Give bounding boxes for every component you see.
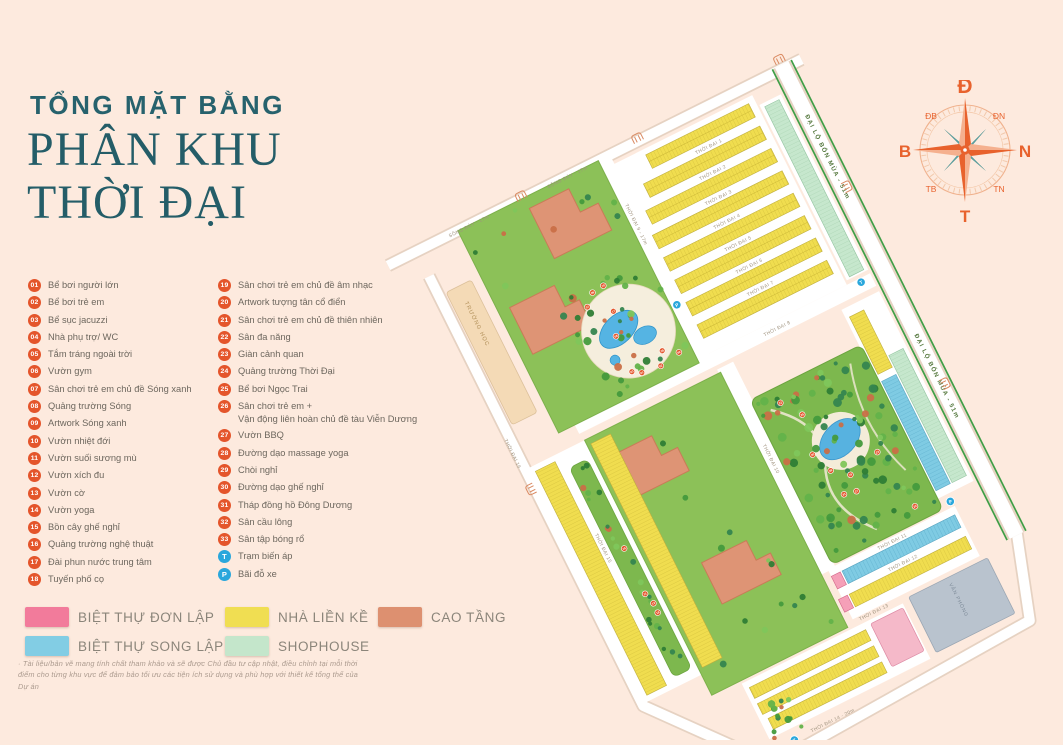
- legend-label: Tắm tráng ngoài trời: [48, 348, 132, 361]
- legend-label: Đài phun nước trung tâm: [48, 556, 152, 569]
- legend-number-badge: 27: [218, 429, 231, 442]
- svg-text:B: B: [899, 142, 911, 161]
- svg-text:TB: TB: [926, 184, 937, 194]
- legend-label: Đường dạo ghế nghỉ: [238, 481, 324, 494]
- legend-item: 09Artwork Sóng xanh: [28, 417, 228, 430]
- legend-number-badge: 12: [28, 469, 41, 482]
- legend-label: Chòi nghỉ: [238, 464, 277, 477]
- legend-item: 05Tắm tráng ngoài trời: [28, 348, 228, 361]
- svg-text:ĐN: ĐN: [993, 111, 1005, 121]
- compass-rose: Đ N T B ĐB ĐN TB TN: [895, 80, 1035, 240]
- legend-label: Sân chơi trẻ em chủ đề âm nhạc: [238, 279, 373, 292]
- legend-item: 08Quảng trường Sóng: [28, 400, 228, 413]
- svg-text:T: T: [960, 207, 971, 226]
- legend-number-badge: 23: [218, 348, 231, 361]
- legend-label: Artwork Sóng xanh: [48, 417, 127, 430]
- legend-number-badge: 17: [28, 556, 41, 569]
- legend-item: 01Bể bơi người lớn: [28, 279, 228, 292]
- legend-item: 07Sân chơi trẻ em chủ đề Sóng xanh: [28, 383, 228, 396]
- legend-number-badge: 32: [218, 516, 231, 529]
- legend-label: Đường dạo massage yoga: [238, 447, 349, 460]
- legend-label: Sân đa năng: [238, 331, 291, 344]
- legend-number-badge: 19: [218, 279, 231, 292]
- legend-number-badge: 05: [28, 348, 41, 361]
- legend-number-badge: 15: [28, 521, 41, 534]
- legend-label: Sân chơi trẻ em chủ đề Sóng xanh: [48, 383, 192, 396]
- subdivision-title: PHÂN KHU THỜI ĐẠI: [27, 124, 282, 230]
- legend-number-badge: 01: [28, 279, 41, 292]
- legend-item: 17Đài phun nước trung tâm: [28, 556, 228, 569]
- legend-number-badge: 31: [218, 499, 231, 512]
- legend-item: 14Vườn yoga: [28, 504, 228, 517]
- legend-label: Vườn xích đu: [48, 469, 104, 482]
- legend-label: Quảng trường nghệ thuật: [48, 538, 153, 551]
- svg-text:Đ: Đ: [957, 80, 972, 98]
- legend-item: 18Tuyến phố cọ: [28, 573, 228, 586]
- legend-label: Sân tập bóng rổ: [238, 533, 304, 546]
- type-legend-don-lap: BIỆT THỰ ĐƠN LẬP: [25, 607, 215, 627]
- legend-item: 06Vườn gym: [28, 365, 228, 378]
- legend-label: Bể bơi Ngọc Trai: [238, 383, 308, 396]
- legend-number-badge: 03: [28, 314, 41, 327]
- legend-label: Bồn cây ghế nghỉ: [48, 521, 120, 534]
- legend-number-badge: 09: [28, 417, 41, 430]
- legend-label: Trạm biến áp: [238, 550, 292, 563]
- color-swatch: [225, 607, 269, 627]
- legend-number-badge: 06: [28, 365, 41, 378]
- legend-number-badge: 33: [218, 533, 231, 546]
- legend-number-badge: 28: [218, 447, 231, 460]
- legend-number-badge: 25: [218, 383, 231, 396]
- subdivision-title-line1: PHÂN KHU: [27, 124, 282, 177]
- legend-number-badge: 29: [218, 464, 231, 477]
- legend-number-badge: 21: [218, 314, 231, 327]
- legend-label: Sân cầu lông: [238, 516, 292, 529]
- legend-number-badge: 14: [28, 504, 41, 517]
- master-plan-poster: TỔNG MẶT BẰNG PHÂN KHU THỜI ĐẠI 01Bể bơi…: [0, 0, 1063, 745]
- legend-item: 16Quảng trường nghệ thuật: [28, 538, 228, 551]
- legend-label: Quảng trường Sóng: [48, 400, 131, 413]
- svg-text:TN: TN: [993, 184, 1004, 194]
- legend-label: Sân chơi trẻ em chủ đề thiên nhiên: [238, 314, 383, 327]
- legend-number-badge: P: [218, 568, 231, 581]
- disclaimer-note: · Tài liệu/bản vẽ mang tính chất tham kh…: [18, 658, 370, 692]
- svg-text:ĐB: ĐB: [925, 111, 937, 121]
- legend-number-badge: 22: [218, 331, 231, 344]
- type-legend-shophouse: SHOPHOUSE: [225, 636, 370, 656]
- legend-label: Bể sục jacuzzi: [48, 314, 107, 327]
- legend-number-badge: 20: [218, 296, 231, 309]
- legend-label: Vườn suối sương mù: [48, 452, 137, 465]
- type-legend-lien-ke: NHÀ LIỀN KỀ: [225, 607, 369, 627]
- legend-number-badge: 04: [28, 331, 41, 344]
- type-legend-song-lap: BIỆT THỰ SONG LẬP: [25, 636, 224, 656]
- legend-label: Giàn cảnh quan: [238, 348, 304, 361]
- legend-number-badge: 16: [28, 538, 41, 551]
- amenity-legend-column-1: 01Bể bơi người lớn02Bể bơi trẻ em03Bể sụ…: [28, 279, 228, 590]
- legend-label: Tuyến phố cọ: [48, 573, 104, 586]
- legend-number-badge: 11: [28, 452, 41, 465]
- legend-label: Artwork tượng tân cổ điển: [238, 296, 345, 309]
- legend-item: 04Nhà phụ trợ/ WC: [28, 331, 228, 344]
- color-swatch: [25, 636, 69, 656]
- legend-number-badge: 26: [218, 400, 231, 413]
- legend-label: Vườn BBQ: [238, 429, 284, 442]
- subdivision-title-line2: THỜI ĐẠI: [27, 177, 282, 230]
- legend-label: Bể bơi trẻ em: [48, 296, 104, 309]
- svg-text:N: N: [1019, 142, 1031, 161]
- legend-label: Tháp đồng hồ Đông Dương: [238, 499, 352, 512]
- legend-item: 03Bể sục jacuzzi: [28, 314, 228, 327]
- legend-number-badge: 08: [28, 400, 41, 413]
- color-swatch: [25, 607, 69, 627]
- legend-item: 10Vườn nhiệt đới: [28, 435, 228, 448]
- legend-number-badge: 18: [28, 573, 41, 586]
- color-swatch: [225, 636, 269, 656]
- legend-number-badge: T: [218, 550, 231, 563]
- legend-item: 12Vườn xích đu: [28, 469, 228, 482]
- legend-item: 02Bể bơi trẻ em: [28, 296, 228, 309]
- legend-number-badge: 24: [218, 365, 231, 378]
- legend-label: Vườn cờ: [48, 487, 85, 500]
- legend-label: Vườn nhiệt đới: [48, 435, 110, 448]
- legend-label: Vườn yoga: [48, 504, 94, 517]
- legend-item: 15Bồn cây ghế nghỉ: [28, 521, 228, 534]
- legend-label: Bể bơi người lớn: [48, 279, 119, 292]
- legend-number-badge: 02: [28, 296, 41, 309]
- legend-item: 13Vườn cờ: [28, 487, 228, 500]
- page-title: TỔNG MẶT BẰNG: [30, 90, 285, 121]
- legend-number-badge: 07: [28, 383, 41, 396]
- legend-label: Bãi đỗ xe: [238, 568, 277, 581]
- legend-number-badge: 30: [218, 481, 231, 494]
- legend-label: Nhà phụ trợ/ WC: [48, 331, 118, 344]
- legend-label: Vườn gym: [48, 365, 92, 378]
- legend-label: Quảng trường Thời Đại: [238, 365, 335, 378]
- legend-number-badge: 13: [28, 487, 41, 500]
- legend-number-badge: 10: [28, 435, 41, 448]
- legend-item: 11Vườn suối sương mù: [28, 452, 228, 465]
